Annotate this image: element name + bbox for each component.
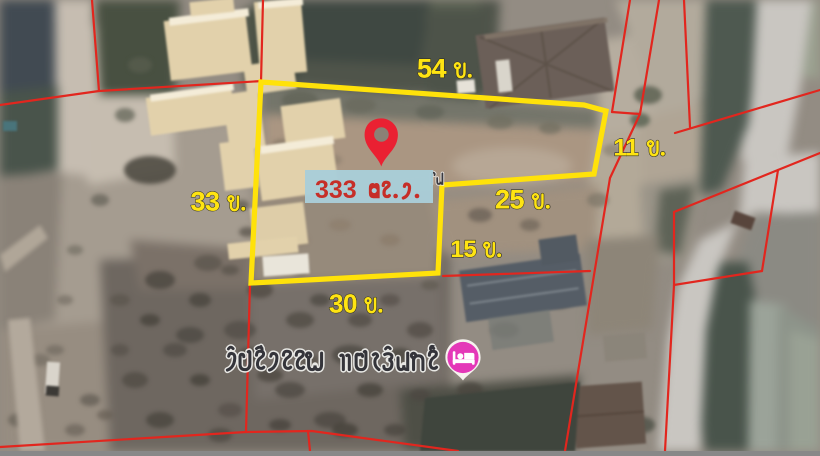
svg-text:15: 15 <box>451 236 477 263</box>
svg-text:30: 30 <box>329 289 357 319</box>
svg-text:25: 25 <box>495 185 525 215</box>
svg-text:33: 33 <box>191 187 221 217</box>
svg-text:11: 11 <box>614 135 639 162</box>
svg-text:333: 333 <box>315 176 357 204</box>
svg-text:54: 54 <box>417 54 447 84</box>
